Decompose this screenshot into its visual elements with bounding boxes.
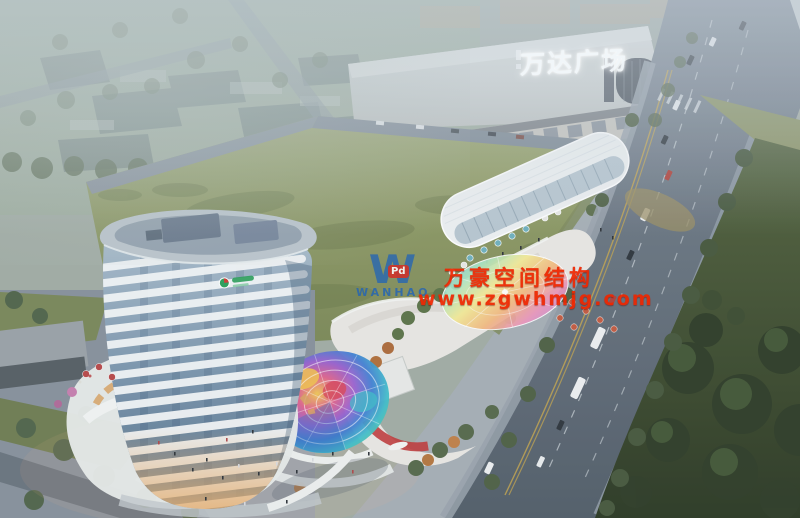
scene-canvas <box>0 0 800 518</box>
dusk-tint <box>0 0 800 518</box>
aerial-rendering: 万达广场 W Pd WANHAO 万豪空间结构 www.zgwhmjg.com <box>0 0 800 518</box>
